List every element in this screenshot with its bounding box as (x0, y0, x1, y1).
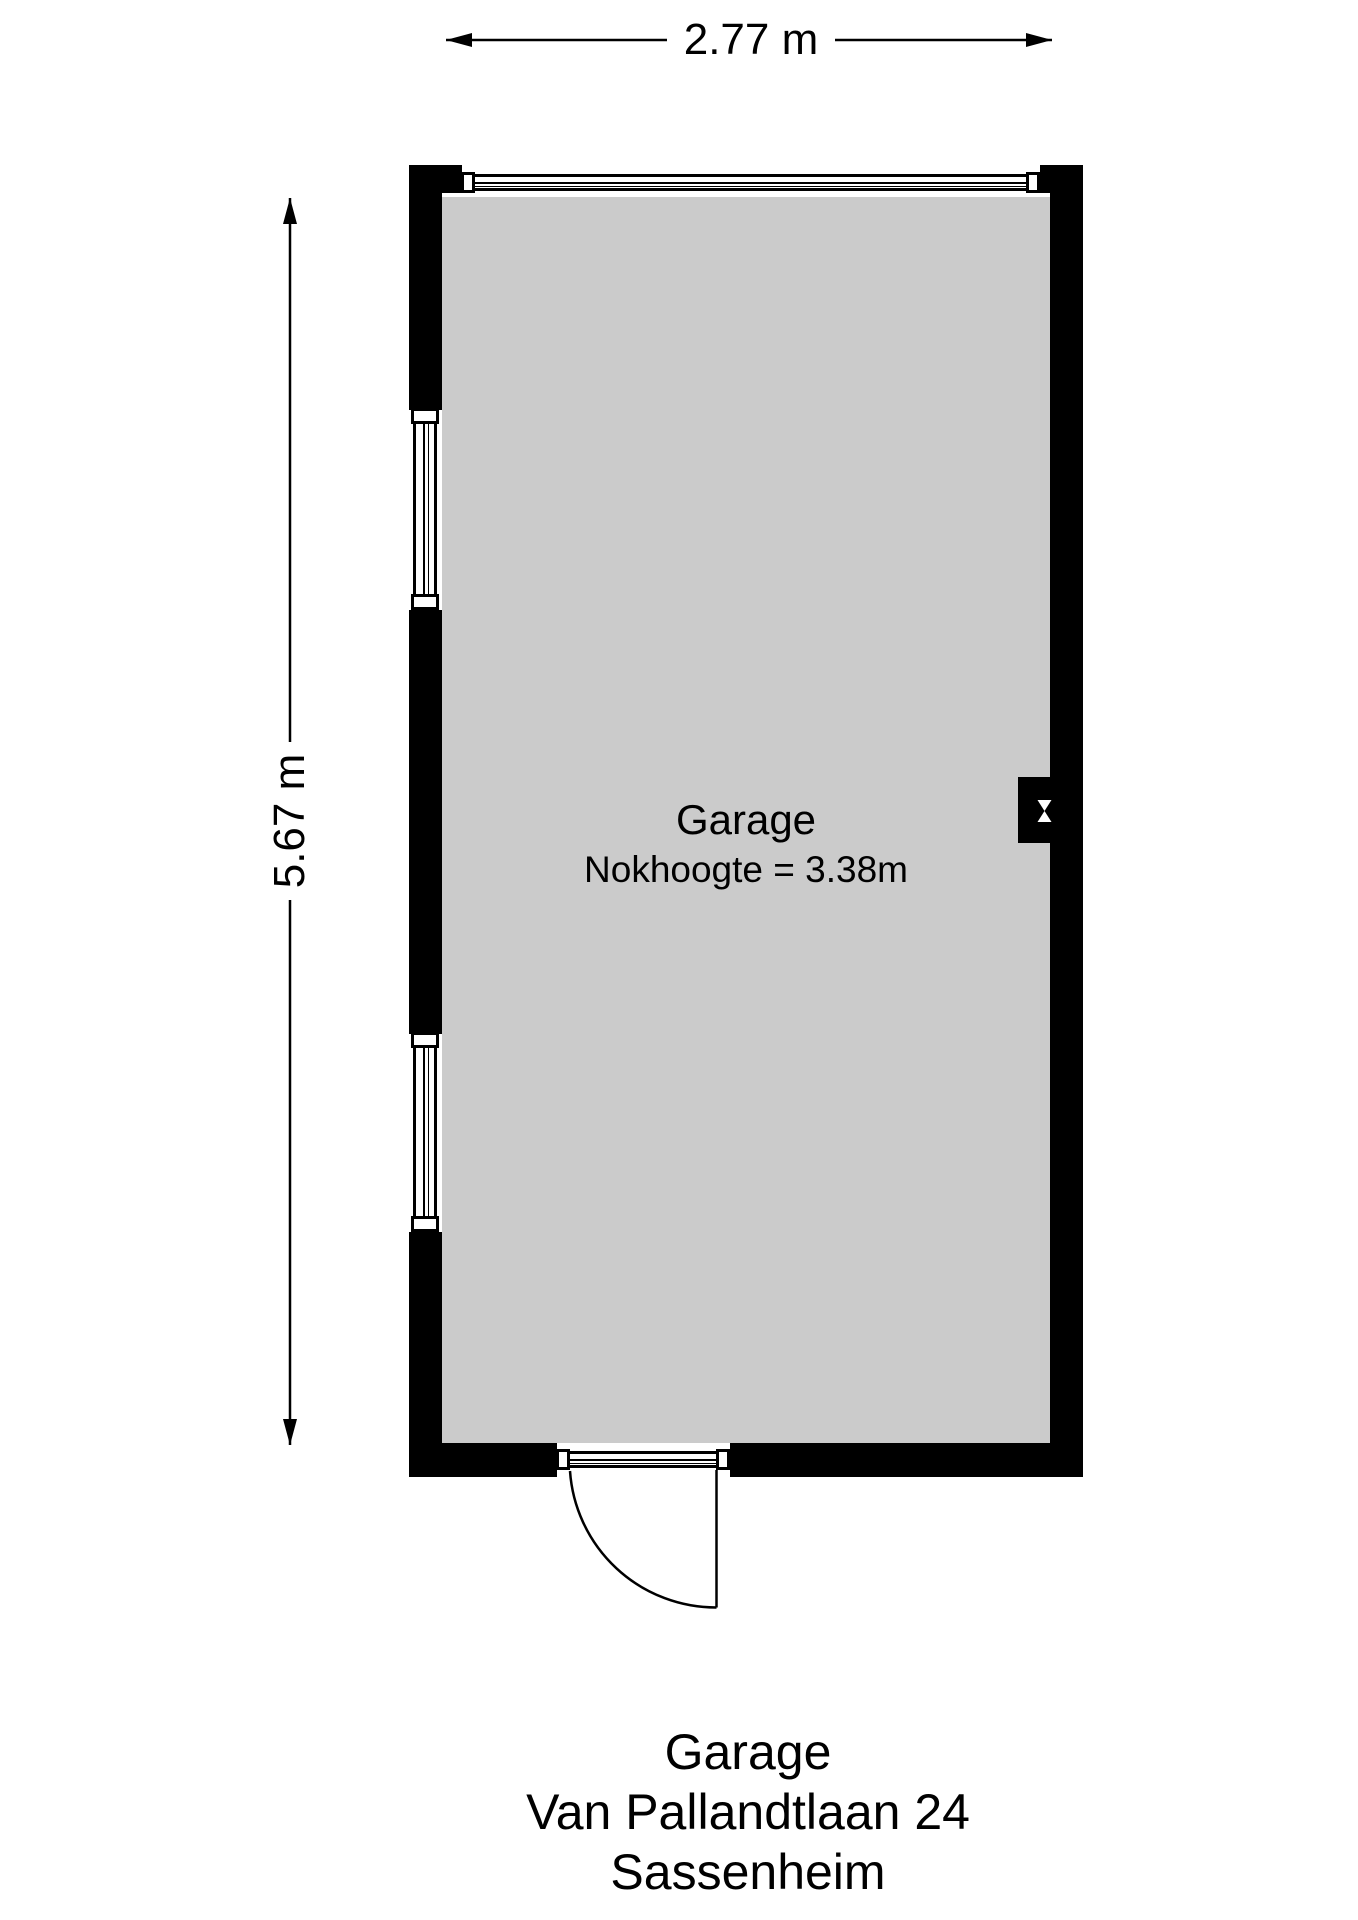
window-frame-cap (411, 594, 439, 610)
plan-caption: Garage Van Pallandtlaan 24 Sassenheim (398, 1722, 1098, 1902)
wall-left-upper (409, 165, 442, 410)
door-threshold-line (570, 1463, 717, 1465)
window-left-upper (413, 410, 437, 610)
caption-title: Garage (398, 1722, 1098, 1782)
chimney-flue-block (1018, 777, 1050, 843)
caption-city: Sassenheim (398, 1842, 1098, 1902)
door-frame-cap (556, 1449, 570, 1470)
door (570, 1470, 717, 1608)
window-pane-line (428, 1034, 430, 1232)
window-frame-cap (411, 1032, 439, 1048)
window-left-lower (413, 1034, 437, 1232)
window-frame-cap (411, 408, 439, 424)
arrow-up-icon (283, 198, 297, 224)
arrow-down-icon (283, 1419, 297, 1445)
dimension-width-label: 2.77 m (631, 15, 871, 65)
door-threshold (570, 1451, 717, 1468)
wall-left-lower (409, 1232, 442, 1477)
door-frame-cap (716, 1449, 730, 1470)
window-top (462, 174, 1040, 191)
arrow-left-icon (446, 33, 472, 47)
window-pane-line (462, 182, 1040, 184)
wall-top-corner-left (409, 165, 462, 193)
window-pane-line (423, 410, 425, 610)
ridge-height-label: Nokhoogte = 3.38m (496, 850, 996, 890)
wall-right (1050, 165, 1083, 1477)
window-frame-cap (1026, 172, 1040, 193)
caption-address: Van Pallandtlaan 24 (398, 1782, 1098, 1842)
wall-bottom-left (409, 1443, 557, 1477)
floor-plan: 2.77 m 5.67 m Garage Nokhoogte = 3.38m G… (0, 0, 1358, 1920)
wall-left-middle (409, 610, 442, 1034)
window-pane-line (462, 186, 1040, 188)
window-pane-line (428, 410, 430, 610)
wall-top-corner-right (1040, 165, 1083, 193)
window-pane-line (423, 1034, 425, 1232)
wall-bottom-right (730, 1443, 1083, 1477)
room-label: Garage (596, 798, 896, 842)
door-threshold-line (570, 1459, 717, 1461)
door-swing-arc (570, 1471, 717, 1608)
window-frame-cap (461, 172, 475, 193)
arrow-right-icon (1026, 33, 1052, 47)
window-frame-cap (411, 1216, 439, 1232)
dimension-height-label: 5.67 m (265, 754, 315, 889)
